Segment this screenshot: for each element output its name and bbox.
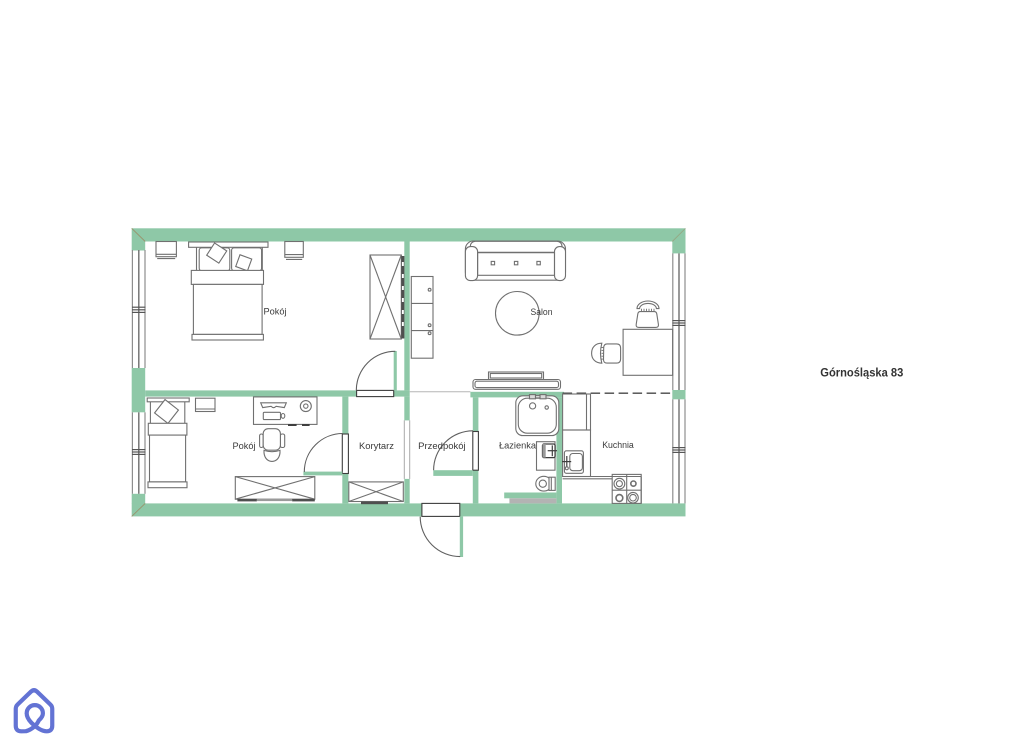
svg-text:Górnośląska 83: Górnośląska 83 [820,365,903,379]
svg-text:Pokój: Pokój [233,441,256,452]
svg-text:Salon: Salon [531,307,553,318]
svg-text:Łazienka: Łazienka [499,441,537,452]
svg-text:Przedpokój: Przedpokój [418,441,466,452]
svg-text:Kuchnia: Kuchnia [602,440,634,451]
svg-text:Korytarz: Korytarz [359,441,394,452]
svg-text:Pokój: Pokój [264,306,287,317]
